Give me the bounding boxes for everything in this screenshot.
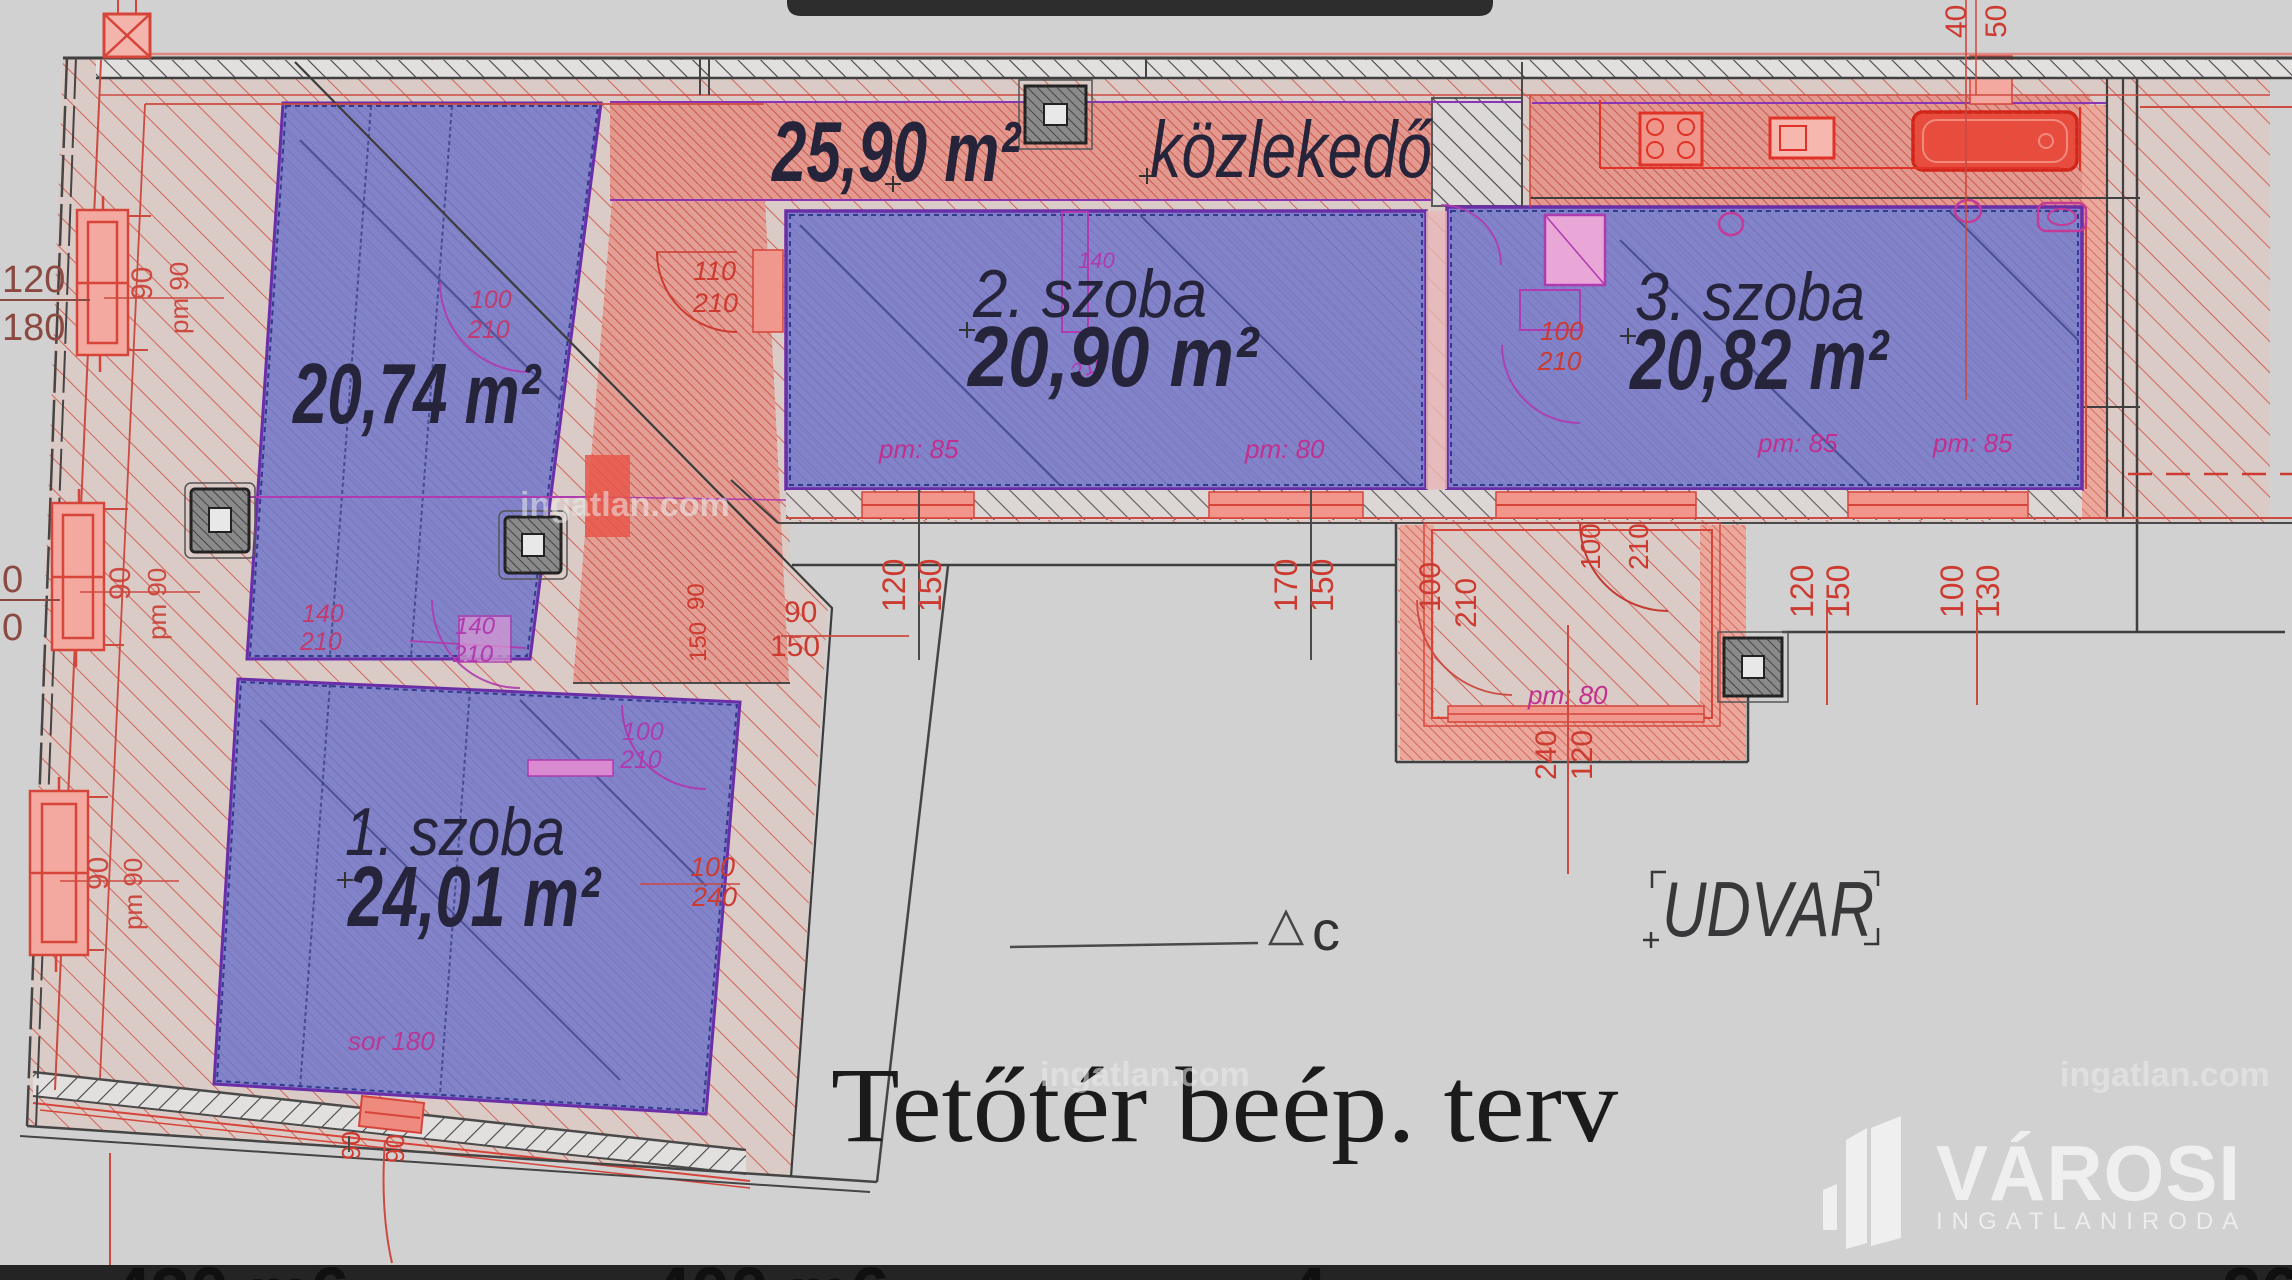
- svg-text:pm: 85: pm: 85: [878, 434, 959, 464]
- svg-text:INGATLANIRODA: INGATLANIRODA: [1936, 1208, 2247, 1235]
- svg-text:430 m6: 430 m6: [112, 1253, 349, 1280]
- svg-text:210: 210: [1623, 523, 1654, 570]
- svg-text:90: 90: [82, 857, 115, 890]
- svg-text:210: 210: [1537, 346, 1582, 376]
- svg-text:150: 150: [770, 630, 820, 663]
- svg-text:90: 90: [683, 583, 710, 610]
- svg-text:90: 90: [126, 267, 159, 300]
- svg-text:26: 26: [2222, 1253, 2292, 1280]
- svg-text:90: 90: [336, 1131, 366, 1160]
- svg-text:UDVAR: UDVAR: [1662, 865, 1874, 953]
- svg-text:VÁROSI: VÁROSI: [1936, 1129, 2241, 1217]
- svg-text:20,90 m²: 20,90 m²: [966, 310, 1260, 405]
- svg-text:210: 210: [452, 641, 494, 668]
- svg-text:150: 150: [1820, 565, 1856, 618]
- svg-text:120: 120: [1566, 730, 1599, 780]
- svg-text:pm: 80: pm: 80: [1244, 434, 1325, 464]
- svg-text:4: 4: [1288, 1253, 1327, 1280]
- svg-text:pm: 85: pm: 85: [1932, 428, 2013, 458]
- svg-text:100: 100: [690, 852, 735, 882]
- svg-text:130: 130: [1970, 565, 2006, 618]
- svg-text:110: 110: [693, 256, 736, 286]
- svg-text:170: 170: [1268, 559, 1304, 612]
- svg-text:240: 240: [1530, 730, 1563, 780]
- svg-text:közlekedő: közlekedő: [1150, 105, 1433, 194]
- svg-text:100: 100: [1540, 316, 1584, 346]
- svg-text:100: 100: [1414, 562, 1447, 612]
- svg-text:400 m6: 400 m6: [652, 1253, 889, 1280]
- svg-text:ingatlan.com: ingatlan.com: [1040, 1056, 1250, 1094]
- svg-text:100: 100: [622, 718, 664, 746]
- svg-text:40: 40: [1940, 5, 1973, 38]
- svg-text:25,90 m²: 25,90 m²: [771, 105, 1022, 200]
- svg-text:210: 210: [1450, 578, 1483, 628]
- svg-text:150: 150: [1304, 559, 1340, 612]
- svg-text:210: 210: [467, 316, 510, 344]
- svg-text:210: 210: [299, 628, 342, 656]
- svg-text:pm 90: pm 90: [164, 262, 194, 334]
- svg-text:120: 120: [876, 559, 912, 612]
- svg-text:ingatlan.com: ingatlan.com: [2060, 1056, 2270, 1094]
- svg-text:90: 90: [380, 1134, 410, 1163]
- svg-text:50: 50: [1980, 5, 2013, 38]
- svg-text:pm 90: pm 90: [142, 568, 172, 640]
- svg-text:150: 150: [912, 559, 948, 612]
- svg-text:210: 210: [619, 746, 662, 774]
- svg-text:pm: 85: pm: 85: [1757, 428, 1838, 458]
- svg-text:0: 0: [2, 607, 23, 649]
- svg-text:100: 100: [470, 286, 512, 314]
- svg-text:120: 120: [1784, 565, 1820, 618]
- svg-text:20,82 m²: 20,82 m²: [1628, 313, 1890, 408]
- svg-text:140: 140: [455, 613, 496, 640]
- svg-text:c: c: [1312, 899, 1340, 962]
- svg-text:24,01 m²: 24,01 m²: [347, 850, 602, 945]
- svg-text:20,74 m²: 20,74 m²: [292, 347, 542, 442]
- svg-text:100: 100: [1934, 565, 1970, 618]
- svg-text:210: 210: [692, 288, 738, 318]
- svg-text:120: 120: [2, 259, 65, 301]
- svg-text:150: 150: [685, 622, 712, 662]
- svg-text:240: 240: [691, 882, 737, 912]
- svg-text:sor 180: sor 180: [348, 1026, 435, 1056]
- svg-text:0: 0: [2, 559, 23, 601]
- svg-text:90: 90: [784, 596, 817, 629]
- svg-text:pm 90: pm 90: [118, 858, 148, 930]
- svg-text:180: 180: [2, 307, 65, 349]
- svg-text:90: 90: [104, 567, 137, 600]
- svg-text:140: 140: [302, 600, 344, 628]
- svg-text:ingatlan.com: ingatlan.com: [520, 486, 730, 524]
- svg-text:100: 100: [1575, 523, 1606, 570]
